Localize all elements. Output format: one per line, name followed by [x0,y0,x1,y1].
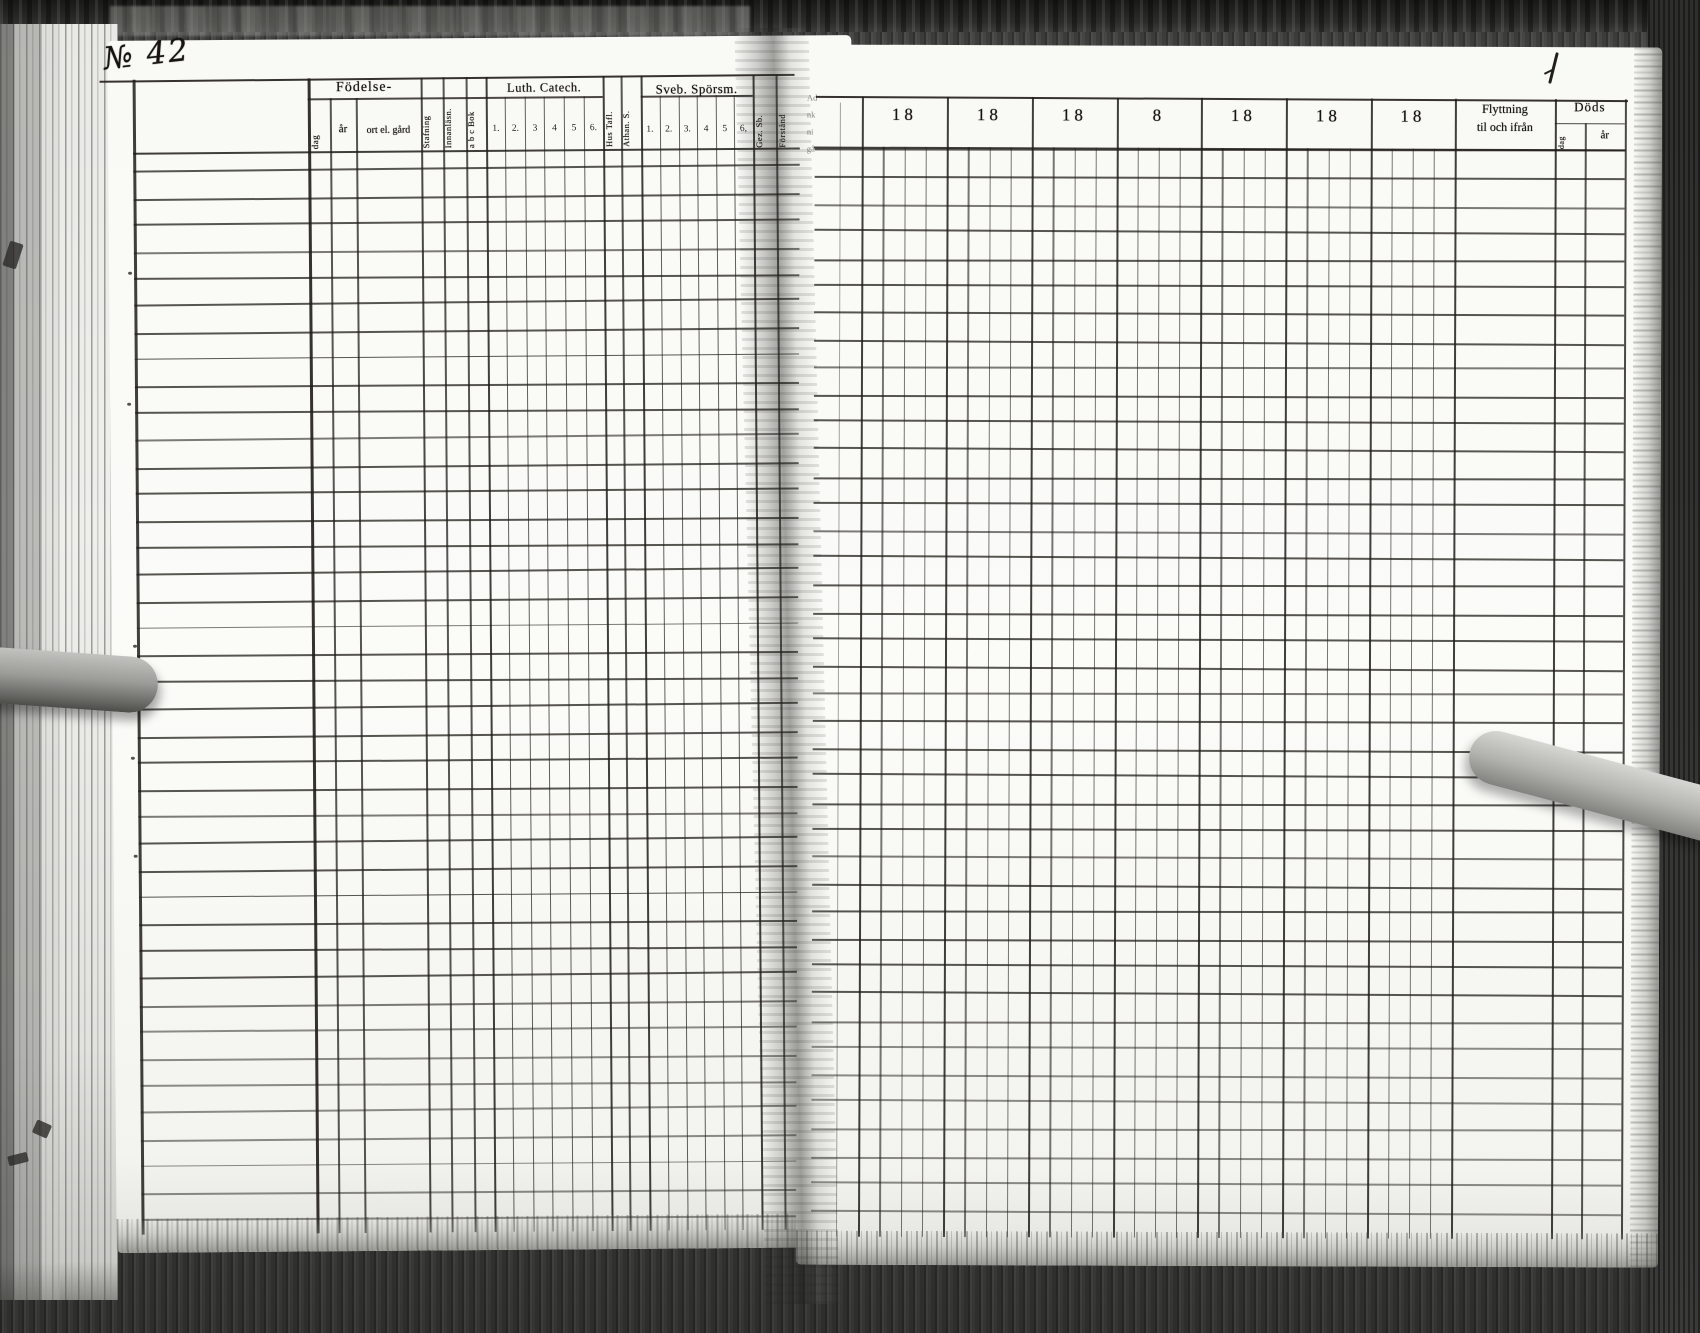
year-header-1: 18 [882,105,926,125]
header-luther-catechism-group: Luth. Catech. [486,80,603,96]
year-header-4: 8 [1137,106,1181,126]
subheader-death-day: dag [1557,127,1583,149]
grid-hline [812,1046,1622,1050]
grid-hline [813,692,1623,695]
grid-hline [139,920,831,926]
subheader-luth-4: 4 [545,123,563,133]
grid-hline [813,554,1623,560]
grid-vline [356,98,367,1233]
grid-hline [814,259,1624,262]
grid-hline [141,1134,833,1142]
gutter-text-fragments: Adnknigå [800,44,1662,47]
right-table-grid [800,44,1662,47]
grid-vline [660,96,670,1231]
grid-hline [134,274,826,279]
grid-hline [140,1081,832,1086]
grid-vline [564,96,574,1231]
grid-hline [812,827,1622,831]
grid-hline [135,432,827,441]
grid-vline [679,95,689,1230]
grid-vline [697,95,707,1230]
grid-hline [811,1181,1621,1186]
grid-hline [136,487,828,494]
subheader-sveb-4: 4 [697,124,715,134]
grid-vline [716,95,726,1230]
grid-hline [137,622,829,629]
grid-vline [330,98,341,1233]
grid-hline [136,567,828,576]
grid-hline [133,147,834,155]
grid-hline [137,701,829,710]
grid-hline [140,970,832,979]
grid-hline [134,248,826,254]
grid-vline [505,97,515,1232]
grid-vline [525,97,535,1232]
grid-hline [812,1074,1622,1079]
grid-hline [811,1209,1621,1215]
grid-hline [813,637,1623,642]
grid-hline [140,999,832,1007]
grid-hline [814,502,1624,506]
grid-hline [814,394,1624,398]
subheader-birth-year: år [330,123,356,135]
subheader-creed-1: Athan. S. [621,81,642,147]
subheader-birth-place: ort el. gård [356,124,421,136]
grid-hline [138,786,830,792]
ink-smudge [7,1152,29,1167]
grid-hline [812,991,1622,997]
ink-dot [134,855,138,858]
grid-hline [135,353,827,360]
grid-hline [133,163,825,172]
grid-hline [137,677,829,682]
grid-vline [1581,123,1586,1239]
header-birth-group: Födelse- [308,79,421,96]
grid-hline [135,382,827,388]
header-moving-line1: Flyttning [1455,102,1555,117]
grid-hline [138,730,830,738]
grid-hline [814,477,1624,480]
grid-hline [140,1025,832,1032]
subheader-luth-3: 3 [526,124,544,134]
grid-hline [138,756,830,763]
header-death-group: Döds [1555,99,1625,115]
grid-hline [811,1157,1621,1161]
grid-hline [139,891,831,898]
ink-dot [133,645,137,648]
grid-hline [137,651,829,657]
grid-hline [814,339,1624,345]
grid-hline [135,327,827,335]
subheader-luth-2: 2. [506,124,524,134]
grid-hline [815,204,1625,209]
grid-hline [814,283,1624,287]
grid-hline [814,419,1624,424]
grid-hline [813,665,1623,671]
grid-hline [1555,123,1625,125]
grid-hline [813,613,1623,617]
grid-hline [815,176,1625,180]
grid-hline [814,366,1624,369]
grid-hline [815,148,1625,151]
grid-hline [138,812,830,817]
grid-hline [141,1189,833,1195]
grid-hline [812,938,1622,942]
grid-hline [814,311,1624,316]
grid-hline [813,585,1623,588]
grid-hline [133,192,825,200]
grid-hline [812,1021,1622,1024]
ink-dot [131,757,135,760]
grid-hline [139,836,831,845]
grid-hline [814,447,1624,453]
death-subcolumns: dagår [800,44,1662,47]
year-header-3: 18 [1052,105,1096,125]
ink-smudge [32,1119,52,1138]
grid-hline [814,229,1624,235]
church-record-book-scan: № 42 Födelse- Luth. Catech. Sveb. Spörsm… [0,0,1700,1333]
subheader-creed-0: Hus Tafl. [604,81,622,147]
grid-hline [812,803,1622,806]
grid-hline [142,1215,834,1220]
grid-hline [811,1129,1621,1132]
ink-smudge [2,240,23,269]
subheader-reading-1: Innanläsn. [443,82,467,148]
grid-vline [584,96,594,1231]
grid-hline [136,543,828,548]
header-moving-line2: til och ifrån [1455,120,1555,135]
grid-hline [812,883,1622,889]
grid-hline [811,1098,1621,1104]
grid-hline [812,910,1622,913]
ink-dot [127,403,131,406]
year-header-5: 18 [1221,106,1265,126]
year-header-2: 18 [967,105,1011,125]
grid-vline [544,97,554,1232]
grid-hline [136,517,828,523]
grid-hline [139,865,831,873]
year-column-headers: 1818188181818 [800,44,1662,47]
grid-hline [134,218,826,225]
subheader-reading-2: a b c Bok [466,82,487,148]
grid-hline [812,963,1622,968]
subheader-sveb-3: 3. [678,124,696,134]
subheader-sveb-2: 2. [660,124,678,134]
year-header-7: 18 [1391,107,1435,127]
page-top-mottle [110,6,750,36]
grid-hline [140,1055,832,1061]
grid-hline [813,530,1623,535]
subheader-sveb-1: 1. [641,125,659,135]
grid-hline [812,855,1622,860]
grid-hline [141,1105,833,1114]
subheader-luth-6: 6. [584,123,602,133]
ink-dot [128,272,132,275]
grid-hline [137,596,829,604]
subheader-sveb-5: 5 [716,124,734,134]
subheader-reading-0: Stafning [421,82,444,148]
subheader-luth-5: 5 [565,123,583,133]
grid-hline [813,720,1623,724]
year-header-6: 18 [1306,106,1350,126]
grid-hline [136,461,828,469]
grid-hline [139,946,831,951]
subheader-birth-day: dag [310,109,329,149]
subheader-death-year: år [1585,129,1625,141]
subheader-luth-1: 1. [487,124,505,134]
right-page: 1818188181818 Flyttning til och ifrån Dö… [796,44,1662,1267]
grid-hline [135,408,827,413]
grid-hline [134,298,826,307]
grid-vline [836,103,841,1237]
grid-hline [141,1160,833,1167]
